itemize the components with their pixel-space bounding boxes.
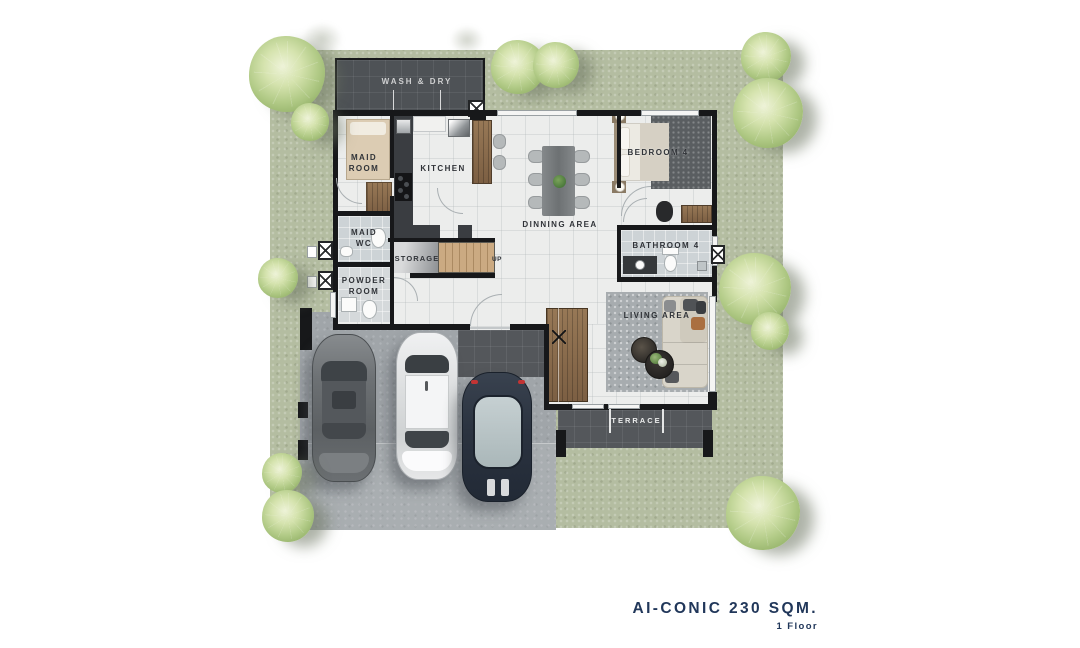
label-terrace: TERRACE	[609, 409, 664, 433]
label-kitchen: KITCHEN	[413, 163, 473, 174]
sink-icon	[635, 260, 645, 270]
tree-shadow	[443, 20, 491, 60]
car-sedan-graphite	[312, 334, 376, 482]
dining-chair	[573, 196, 590, 209]
door-threshold	[470, 327, 510, 329]
entry-walkway	[458, 330, 544, 377]
label-bedroom4: BEDROOM 4	[608, 147, 708, 158]
wall-bath-bottom	[617, 277, 717, 282]
plan-title-block: AI-CONIC 230 SQM. 1 Floor	[598, 600, 818, 632]
car-taillight	[471, 380, 478, 384]
tree	[262, 453, 302, 493]
ac-pad	[307, 276, 317, 288]
sink-icon	[341, 297, 357, 312]
fridge-icon	[448, 119, 470, 137]
wall-interior	[333, 262, 393, 267]
label-maid-room: MAIDROOM	[335, 152, 393, 174]
car-hood	[319, 453, 369, 473]
wall-stub	[470, 112, 486, 120]
console-emblem-icon	[552, 330, 566, 344]
wall-stub	[298, 440, 308, 460]
car-glass-roof	[473, 395, 523, 469]
label-dinning-area: DINNING AREA	[510, 219, 610, 230]
dining-chair	[573, 150, 590, 163]
stool	[493, 155, 506, 170]
car-windshield	[321, 361, 367, 383]
label-wash-dry: WASH & DRY	[342, 76, 492, 87]
burner	[398, 176, 403, 181]
shower-drain-icon	[697, 261, 707, 271]
plan-subtitle: 1 Floor	[598, 621, 818, 632]
label-storage: STORAGE	[392, 253, 442, 264]
dressing-chair	[656, 201, 673, 222]
tree	[262, 490, 314, 542]
kitchen-lower-cabinet	[394, 225, 440, 238]
tree	[726, 476, 800, 550]
tree	[249, 36, 325, 112]
dining-chair	[573, 173, 590, 186]
washer-icon	[396, 119, 411, 134]
ac-unit-icon	[318, 271, 333, 290]
plan-title: AI-CONIC 230 SQM.	[598, 600, 818, 618]
floor-plan-canvas: WASH & DRY MAIDROOM KITCHEN DINNING AREA…	[0, 0, 1080, 648]
toilet-bowl-icon	[664, 255, 677, 272]
burner	[404, 194, 409, 199]
tree	[533, 42, 579, 88]
wall-bath-left	[617, 230, 621, 282]
car-antenna-icon	[425, 381, 428, 391]
wall-corner	[708, 392, 717, 408]
car-hatch-navy	[462, 372, 532, 502]
tree	[751, 312, 789, 350]
label-up: UP	[489, 254, 505, 265]
wall-stub	[300, 308, 312, 350]
label-bathroom4: BATHROOM 4	[616, 240, 716, 251]
console-divider	[558, 308, 559, 402]
car-hood-stripe	[487, 479, 495, 496]
wall-interior	[333, 211, 393, 216]
label-maid-wc: MAIDWC	[335, 227, 393, 249]
label-living-area: LIVING AREA	[607, 310, 707, 321]
tree	[741, 32, 791, 82]
countertop	[413, 116, 446, 132]
car-taillight	[518, 380, 525, 384]
tree	[258, 258, 298, 298]
wall-storage-bottom	[410, 273, 495, 278]
table-plant-icon	[658, 358, 667, 367]
window	[641, 110, 699, 116]
glass-door	[709, 296, 716, 392]
ac-pad	[307, 246, 317, 258]
burner	[404, 182, 409, 187]
kitchen-lower-cabinet	[458, 225, 472, 238]
car-hood-stripe	[501, 479, 509, 496]
tree	[291, 103, 329, 141]
staircase	[438, 242, 495, 273]
wall-wing-left	[544, 324, 549, 410]
terrace-post	[703, 430, 713, 457]
tv-console	[546, 308, 588, 402]
wall-bath-top	[617, 225, 717, 230]
dresser	[681, 205, 712, 223]
terrace-post	[556, 430, 566, 457]
label-powder-room: POWDERROOM	[335, 275, 393, 297]
car-rear-glass	[405, 355, 449, 373]
breakfast-counter	[472, 120, 492, 184]
maid-bed-pillow	[350, 122, 386, 135]
car-sunroof	[332, 391, 356, 409]
burner	[398, 188, 403, 193]
car-windshield	[405, 431, 449, 448]
stool	[493, 134, 506, 149]
car-rear-glass	[322, 423, 366, 439]
window	[497, 110, 577, 116]
car-hood	[402, 451, 452, 471]
wall-under-cabinets	[388, 238, 495, 242]
wall-stub	[298, 402, 308, 418]
wall-bottom-left	[333, 324, 470, 330]
sliding-door	[572, 404, 604, 409]
table-plant-icon	[553, 175, 566, 188]
ac-unit-icon	[318, 241, 333, 260]
car-suv-white	[396, 332, 458, 480]
tree	[733, 78, 803, 148]
wall-right	[712, 110, 717, 302]
sofa-seam	[663, 342, 707, 343]
toilet-icon	[362, 300, 377, 319]
